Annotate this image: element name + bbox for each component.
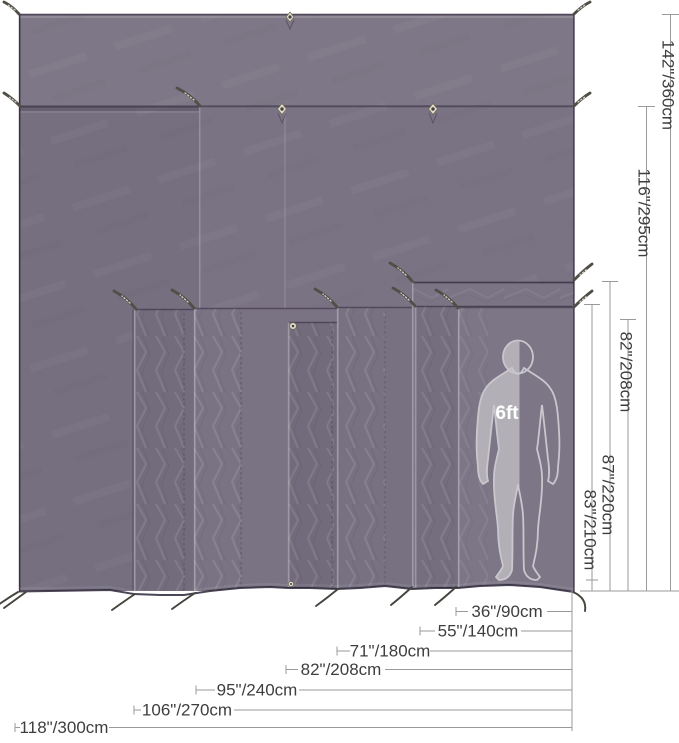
svg-text:55"/140cm: 55"/140cm	[438, 622, 519, 641]
svg-text:6ft: 6ft	[495, 403, 519, 424]
svg-text:118"/300cm: 118"/300cm	[20, 718, 109, 737]
svg-text:82"/208cm: 82"/208cm	[617, 332, 636, 413]
svg-text:83"/210cm: 83"/210cm	[581, 490, 600, 571]
svg-text:95"/240cm: 95"/240cm	[217, 681, 298, 700]
svg-text:82"/208cm: 82"/208cm	[301, 660, 382, 679]
svg-text:116"/295cm: 116"/295cm	[635, 169, 654, 258]
svg-text:36"/90cm: 36"/90cm	[471, 602, 542, 621]
svg-text:106"/270cm: 106"/270cm	[142, 701, 232, 720]
svg-text:71"/180cm: 71"/180cm	[350, 642, 431, 661]
svg-text:142"/360cm: 142"/360cm	[659, 40, 678, 130]
svg-text:87"/220cm: 87"/220cm	[599, 455, 618, 536]
